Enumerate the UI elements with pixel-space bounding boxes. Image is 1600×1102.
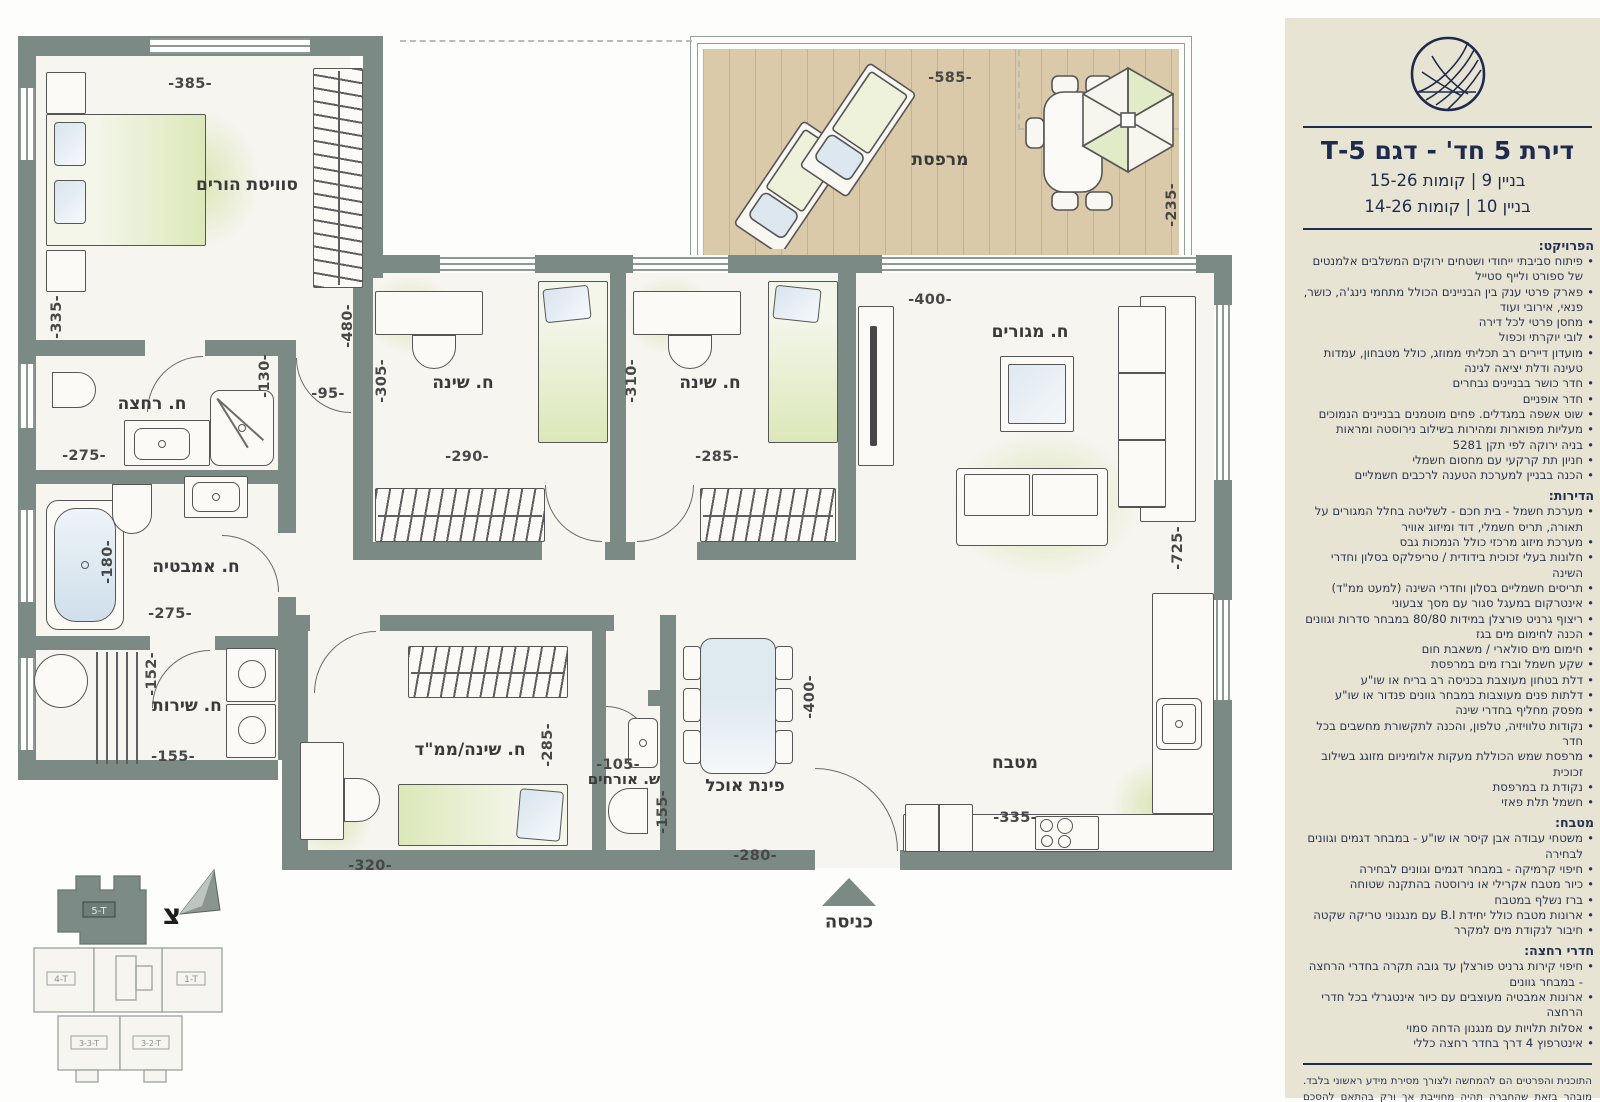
dim-label: -285- (695, 449, 739, 465)
room-label-bed2: ח. שינה (679, 373, 740, 393)
desk (633, 291, 741, 335)
patio-chair (1026, 118, 1044, 148)
dim-label: -235- (1164, 183, 1180, 227)
feature-item: חדר אופניים (1301, 392, 1594, 407)
closet (700, 488, 836, 542)
keyplan-label-4t: 4-T (54, 975, 68, 985)
dim-label: -400- (802, 675, 818, 719)
pillow (54, 180, 86, 224)
window (633, 257, 728, 271)
feature-item: מחסן פרטי לכל דירה (1301, 315, 1594, 330)
keyplan-label-1t: 1-T (184, 975, 198, 985)
feature-item: הכנה לחימום מים בגז (1301, 627, 1594, 642)
dim-label: -280- (733, 848, 777, 864)
feature-item: מפסק מחליף בחדרי שינה (1301, 703, 1594, 718)
wall (380, 615, 614, 631)
wall (36, 340, 145, 356)
feature-item: אינטרקום במעגל סגור עם מסך צבעוני (1301, 596, 1594, 611)
room-label-dining: פינת אוכל (705, 776, 785, 796)
window (1216, 305, 1230, 480)
wall (353, 255, 373, 560)
dim-label: -180- (100, 540, 116, 584)
feature-item: ארונות אמבטיה מעוצבים עם כיור אינטגרלי ב… (1301, 990, 1594, 1021)
feature-item: דלת בטחון מעוצבת בכניסה רב בריח או שו"ע (1301, 673, 1594, 688)
room-label-service: ח. שירות (152, 696, 222, 716)
divider (1303, 126, 1592, 128)
wall (697, 542, 856, 560)
dim-label: -155- (151, 749, 195, 765)
dim-label: -290- (445, 449, 489, 465)
feature-item: פיתוח סביבתי ייחודי ושטחים ירוקים המשלבי… (1301, 254, 1594, 285)
dim-label: -105- (596, 757, 640, 773)
sink (192, 482, 240, 512)
feature-item: חיפוי קירות גרניט פורצלן עד גובה תקרה בח… (1301, 959, 1594, 990)
dim-label: -585- (928, 70, 972, 86)
dim-label: -275- (148, 606, 192, 622)
feature-item: נקודת גז במרפסת (1301, 780, 1594, 795)
sectional-seat (1118, 306, 1166, 508)
feature-item: אינטרפוץ 4 דרך בחדר רחצה כללי (1301, 1036, 1594, 1051)
wall (838, 255, 856, 560)
feature-item: חיפוי קרמיקה - במבחר דגמים וגוונים לבחיר… (1301, 862, 1594, 877)
entrance-arrow (822, 878, 876, 906)
building-line-1: בניין 9 | קומות 15-26 (1301, 168, 1594, 194)
burner (1041, 835, 1053, 847)
boiler (34, 654, 88, 708)
window (19, 510, 35, 602)
wall (1214, 700, 1232, 870)
feature-item: חיבור לנקודת מים למקרר (1301, 923, 1594, 938)
window (19, 88, 35, 160)
dining-chair (683, 730, 701, 764)
nightstand (46, 250, 86, 292)
section-list-project: פיתוח סביבתי ייחודי ושטחים ירוקים המשלבי… (1301, 254, 1594, 483)
feature-item: נקודות טלוויזיה, טלפון, והכנה לתקשורת מח… (1301, 719, 1594, 750)
dining-chair (775, 730, 793, 764)
window (150, 38, 310, 54)
room-label-bed1: ח. שינה (432, 373, 493, 393)
burner (1040, 819, 1053, 832)
feature-item: הכנה בבניין למערכת הטענה לרכבים חשמליים (1301, 468, 1594, 483)
dim-label: -385- (168, 76, 212, 92)
feature-item: ארונות מטבח כולל יחידת B.I עם מנגנוני טר… (1301, 908, 1594, 923)
feature-item: לובי יוקרתי וכפול (1301, 330, 1594, 345)
feature-item: פארק פרטי ענק בין הבניינים הכולל מתחמי נ… (1301, 285, 1594, 316)
wall (373, 542, 542, 560)
wall (1196, 255, 1232, 273)
north-letter: צ (163, 898, 181, 931)
burner (1057, 818, 1073, 834)
feature-item: בניה ירוקה לפי תקן 5281 (1301, 438, 1594, 453)
section-heading-apartments: הדירות: (1301, 488, 1594, 503)
keyplan-label-32t: 3-2-T (141, 1039, 161, 1048)
dim-label: -480- (340, 304, 356, 348)
section-list-bathrooms: חיפוי קירות גרניט פורצלן עד גובה תקרה בח… (1301, 959, 1594, 1051)
section-list-apartments: מערכת חשמל - בית חכם - לשליטה בחלל המגור… (1301, 504, 1594, 810)
dining-chair (775, 688, 793, 722)
wall (900, 850, 1232, 870)
window (1216, 600, 1230, 700)
window-sliding-door (882, 257, 1196, 271)
north-arrow: צ (163, 870, 220, 931)
closet (408, 646, 568, 698)
pillow (772, 285, 821, 324)
divider (1303, 1063, 1592, 1065)
entrance-label: כניסה (825, 912, 873, 933)
feature-item: חדר כושר בבניינים נבחרים (1301, 376, 1594, 391)
drying-rack (96, 652, 138, 764)
dim-label: -320- (348, 858, 392, 874)
legal-disclaimer: התוכנית והפרטים הם להמחשה ולצורך מסירת מ… (1303, 1074, 1592, 1102)
wall (592, 615, 606, 850)
dim-label: -275- (62, 448, 106, 464)
patio-chair (1052, 192, 1078, 210)
wall (363, 36, 383, 278)
feature-item: שוט אשפה במגדלים. פחים מוטמנים בבניינים … (1301, 407, 1594, 422)
spec-sections: הפרויקט: פיתוח סביבתי ייחודי ושטחים ירוק… (1301, 238, 1594, 1051)
tv-screen (870, 326, 877, 446)
master-closet (313, 68, 363, 288)
toilet (52, 372, 96, 408)
section-heading-project: הפרויקט: (1301, 238, 1594, 253)
wall (282, 850, 615, 870)
brand-logo (1301, 34, 1594, 118)
wall (615, 850, 815, 870)
closet (375, 488, 545, 542)
brochure-page: כניסה סוויטת הורים ח. רחצה ח. אמבטיה ח. … (0, 0, 1600, 1102)
sofa-cushion (964, 474, 1030, 516)
dining-chair (683, 688, 701, 722)
section-heading-bathrooms: חדרי רחצה: (1301, 943, 1594, 958)
dining-table (700, 638, 776, 774)
feature-item: אסלות תלויות עם מנגנון הדחה סמוי (1301, 1021, 1594, 1036)
window (19, 364, 35, 428)
wall (728, 255, 856, 273)
feature-item: ברז נשלף במטבח (1301, 893, 1594, 908)
leaf-logo-icon (1408, 34, 1488, 114)
dim-label: -310- (624, 359, 640, 403)
feature-item: חניון תת קרקעי עם מחסום חשמלי (1301, 453, 1594, 468)
pillow (54, 122, 86, 166)
feature-item: משטחי עבודה אבן קיסר או שו"ע - במבחר דגמ… (1301, 831, 1594, 862)
room-label-balcony: מרפסת (912, 150, 969, 170)
desk (300, 742, 344, 840)
dim-label: -335- (49, 295, 65, 339)
info-sidebar: דירת 5 חד' - דגם 5-T בניין 9 | קומות 15-… (1285, 18, 1600, 1098)
toilet (112, 484, 152, 534)
sofa-cushion (1032, 474, 1098, 516)
burner (1058, 835, 1071, 848)
dim-label: -400- (908, 292, 952, 308)
desk (375, 291, 483, 335)
dining-chair (775, 646, 793, 680)
dryer-drum (238, 716, 266, 744)
feature-item: דלתות פנים מעוצבות במבחר גוונים פנדור או… (1301, 688, 1594, 703)
feature-item: מעליות מפוארות ומהירות בשילוב נירוסטה ומ… (1301, 422, 1594, 437)
floor-plan: כניסה סוויטת הורים ח. רחצה ח. אמבטיה ח. … (0, 0, 1280, 1102)
feature-item: מערכת חשמל - בית חכם - לשליטה בחלל המגור… (1301, 504, 1594, 535)
fridge-divider (938, 804, 940, 852)
room-label-bath1: ח. רחצה (118, 394, 187, 414)
dim-label: -95- (311, 386, 344, 402)
feature-item: תריסים חשמליים בסלון וחדרי השינה (למעט מ… (1301, 581, 1594, 596)
wall (36, 636, 150, 650)
wall (1214, 480, 1232, 600)
room-label-mamad: ח. שינה/ממ"ד (415, 740, 526, 760)
wall (278, 356, 296, 533)
section-heading-kitchen: מטבח: (1301, 815, 1594, 830)
dim-label: -305- (374, 359, 390, 403)
coffee-table-top (1008, 364, 1066, 424)
building-line-2: בניין 10 | קומות 14-26 (1301, 194, 1594, 220)
feature-item: שקע חשמל וברז מים במרפסת (1301, 657, 1594, 672)
key-plan: 5-T 4-T 1-T 3-3-T 3-2-T צ (28, 856, 258, 1091)
room-label-master: סוויטת הורים (196, 175, 298, 195)
room-label-living: ח. מגורים (992, 322, 1069, 342)
room-label-bath2: ח. אמבטיה (152, 557, 239, 577)
dim-label: -152- (144, 652, 160, 696)
feature-item: חשמל תלת פאזי (1301, 795, 1594, 810)
window (440, 257, 535, 271)
dim-label: -725- (1170, 526, 1186, 570)
roof-dashed-line (400, 40, 692, 42)
patio-chair (1086, 192, 1112, 210)
wall (205, 340, 296, 356)
feature-item: כיור מטבח אקרילי או נירוסטה בהתקנה שטוחה (1301, 877, 1594, 892)
feature-item: מרפסת שמש הכוללת מעקות אלומיניום מזוגג ב… (1301, 749, 1594, 780)
wall (856, 255, 882, 273)
room-label-kitchen: מטבח (992, 753, 1038, 773)
washer-drum (238, 660, 266, 688)
window (19, 658, 35, 750)
keyplan-label-33t: 3-3-T (79, 1039, 99, 1048)
pillow (542, 285, 591, 324)
dim-label: -130- (257, 354, 273, 398)
nightstand (46, 72, 86, 114)
toilet (608, 788, 648, 834)
dim-label: -335- (993, 810, 1037, 826)
keyplan-label-5t: 5-T (91, 906, 107, 917)
feature-item: חימום מים סולארי / משאבת חום (1301, 642, 1594, 657)
feature-item: מועדון דיירים רב תכליתי ממוזג, כולל מטבח… (1301, 346, 1594, 377)
apartment-title: דירת 5 חד' - דגם 5-T (1301, 136, 1594, 165)
dim-label: -155- (655, 790, 671, 834)
wall (605, 542, 635, 560)
section-list-kitchen: משטחי עבודה אבן קיסר או שו"ע - במבחר דגמ… (1301, 831, 1594, 938)
feature-item: חלונות בעלי זכוכית בידודית / טריפלקס בסל… (1301, 550, 1594, 581)
sink (134, 428, 190, 460)
wall (18, 760, 278, 780)
divider (1303, 228, 1592, 230)
dim-label: -285- (540, 723, 556, 767)
pillow (516, 788, 564, 842)
dining-chair (683, 646, 701, 680)
feature-item: מערכת מיזוג מרכזי כולל הנמכות גבס (1301, 535, 1594, 550)
kitchen-sink-basin (1162, 704, 1196, 744)
feature-item: ריצוף גרניט פורצלן במידות 80/80 במבחר סד… (1301, 612, 1594, 627)
